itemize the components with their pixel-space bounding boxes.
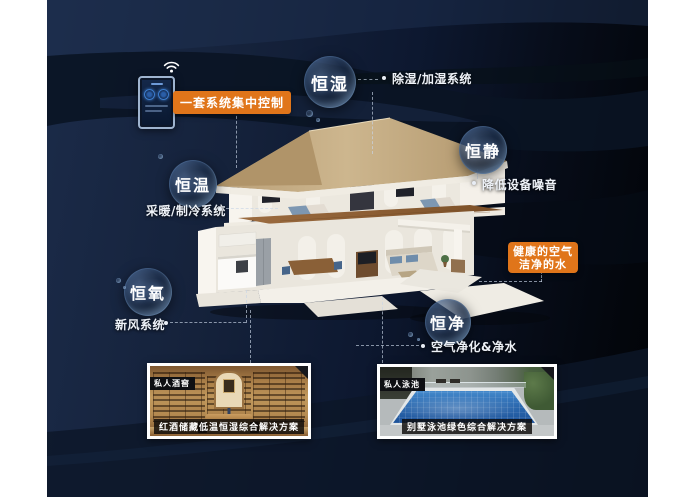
card-caption: 红酒储藏低温恒湿综合解决方案: [154, 419, 304, 434]
control-panel-label: 一套系统集中控制: [173, 91, 291, 114]
mini-bubble: [306, 110, 313, 117]
mini-bubble: [116, 278, 121, 283]
bullet-dot: [472, 181, 476, 185]
card-caption: 别墅泳池绿色综合解决方案: [402, 419, 532, 434]
connector-control-to-house: [236, 111, 237, 168]
mini-bubble: [123, 286, 126, 289]
connector-wine-card: [250, 310, 251, 363]
card-wine-cellar: 私人酒窖 红酒储藏低温恒湿综合解决方案: [147, 363, 311, 439]
bullet-dot: [382, 76, 386, 80]
phone-text-row: [145, 110, 162, 112]
connector-temp-to-house: [226, 208, 278, 209]
bubble-constant-quiet: 恒静: [459, 126, 507, 174]
bubble-constant-humidity: 恒湿: [304, 56, 356, 108]
pool-glass-fence: [410, 382, 526, 388]
wine-cellar-photo: 私人酒窖 红酒储藏低温恒湿综合解决方案: [150, 366, 308, 436]
highlight-line1: 健康的空气: [508, 245, 578, 258]
poster-stage: 一套系统集中控制 健康的空气 洁净的水 恒湿 恒静 恒温 恒氧 恒净 除湿/加湿…: [0, 0, 700, 497]
mini-bubble: [316, 118, 320, 122]
pool-lounger: [436, 379, 446, 383]
card-tag: 私人泳池: [380, 378, 425, 391]
label-heating-cooling-system: 采暖/制冷系统: [146, 202, 226, 219]
bullet-dot: [164, 321, 168, 325]
label-reduce-equipment-noise: 降低设备噪音: [482, 176, 557, 193]
label-air-water-purification: 空气净化&净水: [431, 338, 517, 355]
bubble-constant-temperature: 恒温: [169, 160, 217, 208]
phone-dial-right: [158, 89, 169, 100]
mini-bubble: [417, 338, 420, 341]
connector-pool-card: [382, 297, 383, 363]
phone-screen: [142, 80, 171, 125]
label-fresh-air-system: 新风系统: [115, 316, 165, 333]
mini-bubble: [158, 154, 163, 159]
connector-humidity-bubble: [358, 79, 378, 80]
phone-dial-left: [144, 89, 155, 100]
corner-ribbon: [295, 366, 308, 379]
mini-bubble: [408, 332, 413, 337]
card-private-pool: 私人泳池 别墅泳池绿色综合解决方案: [377, 364, 557, 439]
highlight-box: 健康的空气 洁净的水: [508, 242, 578, 273]
label-dehumidify-humidify-system: 除湿/加湿系统: [392, 70, 472, 87]
wifi-icon: [163, 60, 180, 73]
pool-lounger: [450, 379, 460, 383]
highlight-line2: 洁净的水: [508, 258, 578, 271]
pool-photo: 私人泳池 别墅泳池绿色综合解决方案: [380, 367, 554, 436]
smartphone-icon: [138, 76, 175, 129]
bubble-constant-oxygen: 恒氧: [124, 268, 172, 316]
phone-text-row: [145, 105, 168, 107]
connector-humidity-to-roof: [372, 92, 373, 154]
wine-rack-right: [253, 372, 305, 422]
connector-oxygen-v: [246, 290, 247, 323]
connector-purity: [356, 345, 419, 346]
connector-oxygen-h: [170, 322, 246, 323]
phone-dials: [142, 89, 171, 100]
bullet-dot: [218, 207, 222, 211]
bullet-dot: [421, 344, 425, 348]
connector-highlight-h: [479, 281, 542, 282]
cellar-picture-frame: [223, 379, 235, 393]
card-tag: 私人酒窖: [150, 377, 195, 390]
corner-ribbon: [541, 367, 554, 380]
phone-screen-title-bar: [151, 83, 163, 85]
